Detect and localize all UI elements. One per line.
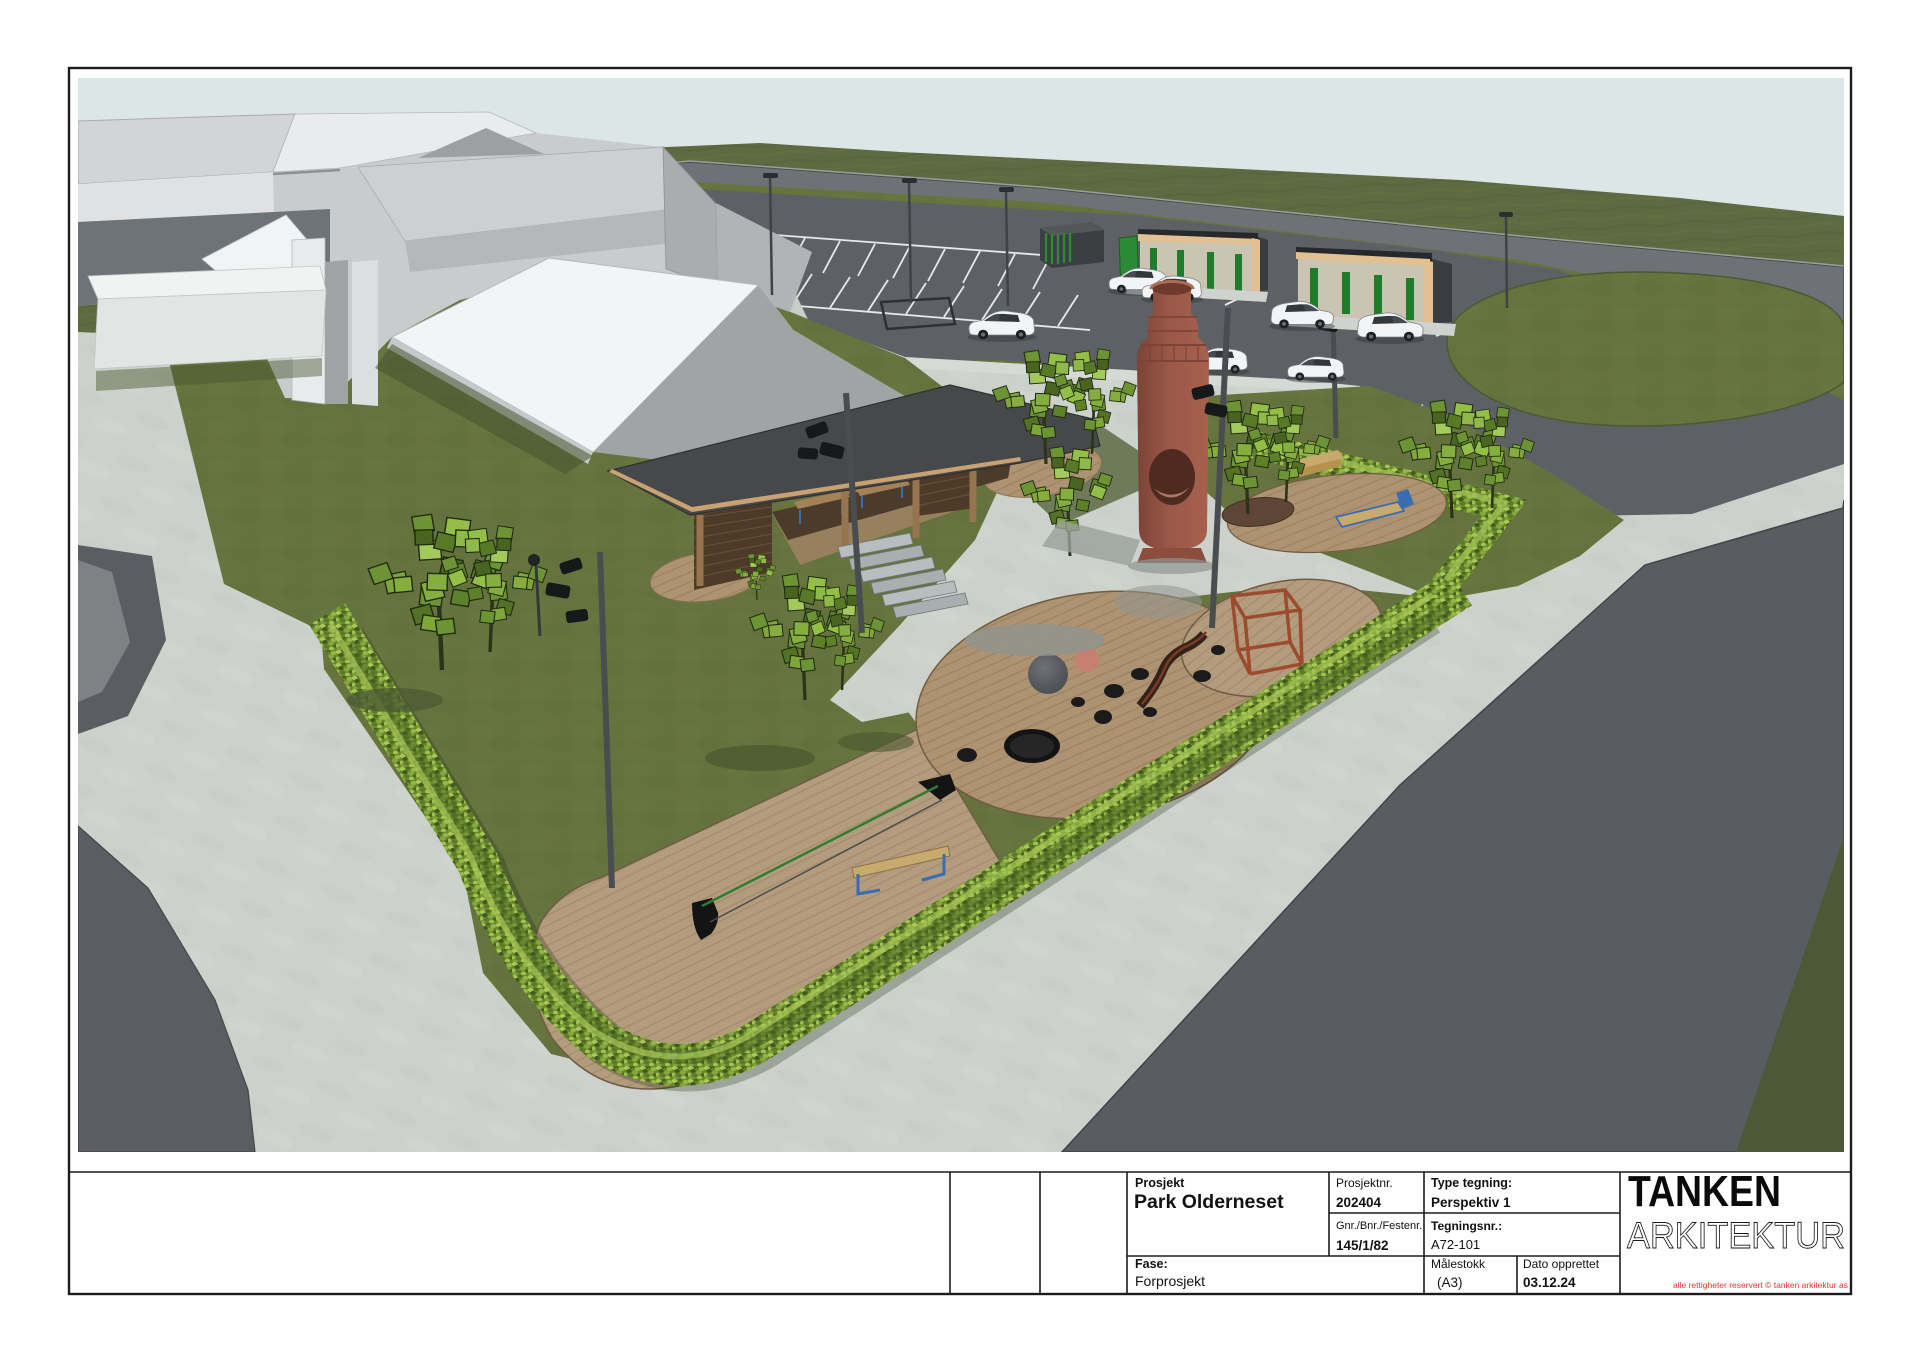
svg-text:202404: 202404	[1336, 1195, 1382, 1210]
svg-text:Forprosjekt: Forprosjekt	[1135, 1273, 1205, 1289]
svg-text:Fase:: Fase:	[1135, 1257, 1168, 1271]
svg-text:(A3): (A3)	[1437, 1275, 1463, 1290]
svg-text:Tegningsnr.:: Tegningsnr.:	[1431, 1219, 1502, 1233]
svg-text:Perspektiv 1: Perspektiv 1	[1431, 1195, 1511, 1210]
svg-text:Park Olderneset: Park Olderneset	[1134, 1191, 1284, 1213]
svg-text:Dato opprettet: Dato opprettet	[1523, 1257, 1600, 1271]
svg-text:Prosjekt: Prosjekt	[1135, 1176, 1185, 1190]
svg-text:145/1/82: 145/1/82	[1336, 1238, 1389, 1253]
svg-text:Målestokk: Målestokk	[1431, 1257, 1486, 1271]
svg-text:Type tegning:: Type tegning:	[1431, 1176, 1512, 1190]
svg-text:Prosjektnr.: Prosjektnr.	[1336, 1176, 1393, 1190]
svg-text:Gnr./Bnr./Festenr.: Gnr./Bnr./Festenr.	[1336, 1220, 1422, 1232]
svg-text:alle rettigheter reservert © t: alle rettigheter reservert © tanken arki…	[1673, 1280, 1848, 1290]
svg-text:A72-101: A72-101	[1431, 1237, 1480, 1252]
svg-text:ARKITEKTUR: ARKITEKTUR	[1627, 1215, 1845, 1256]
svg-text:TANKEN: TANKEN	[1628, 1167, 1781, 1216]
svg-text:03.12.24: 03.12.24	[1523, 1275, 1576, 1290]
